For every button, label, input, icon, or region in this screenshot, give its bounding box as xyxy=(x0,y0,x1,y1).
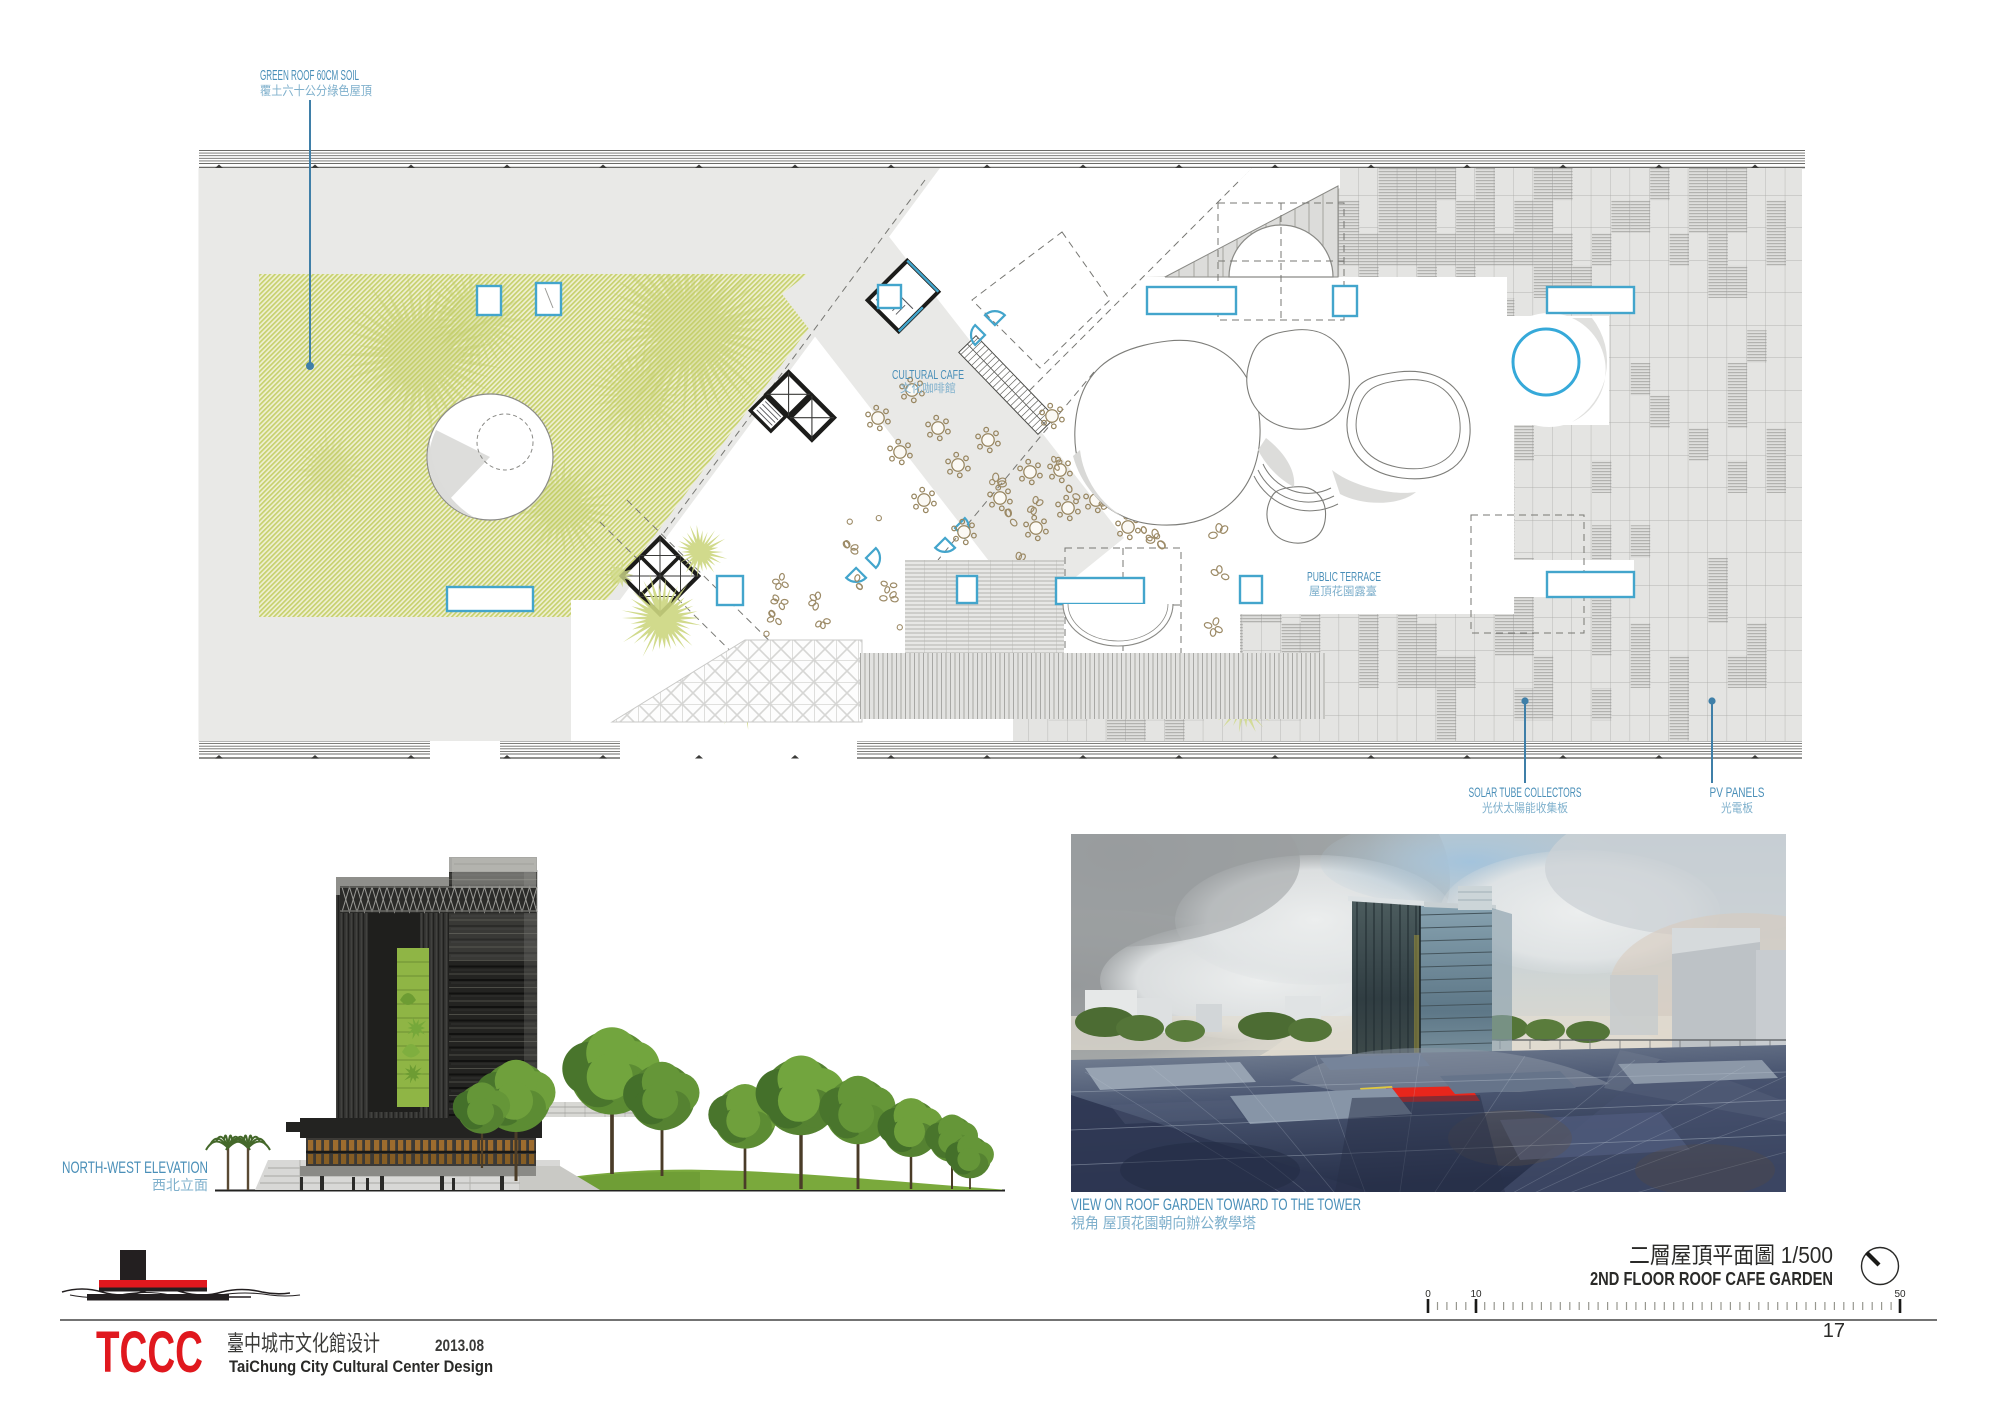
svg-text:二層屋頂平面圖 1/500: 二層屋頂平面圖 1/500 xyxy=(1629,1242,1833,1268)
svg-text:臺中城市文化館设计: 臺中城市文化館设计 xyxy=(227,1331,380,1356)
svg-text:文化咖啡館: 文化咖啡館 xyxy=(900,381,956,395)
svg-text:2013.08: 2013.08 xyxy=(435,1337,484,1355)
svg-text:GREEN ROOF 60CM SOIL: GREEN ROOF 60CM SOIL xyxy=(260,68,359,84)
svg-text:17: 17 xyxy=(1823,1320,1845,1342)
svg-text:NORTH-WEST ELEVATION: NORTH-WEST ELEVATION xyxy=(62,1158,208,1177)
svg-text:光電板: 光電板 xyxy=(1721,801,1753,815)
svg-text:CULTURAL CAFE: CULTURAL CAFE xyxy=(892,368,964,382)
svg-text:視角 屋頂花園朝向辦公教學塔: 視角 屋頂花園朝向辦公教學塔 xyxy=(1071,1214,1256,1232)
svg-text:SOLAR TUBE COLLECTORS: SOLAR TUBE COLLECTORS xyxy=(1469,784,1582,800)
svg-text:TCCC: TCCC xyxy=(96,1320,203,1385)
svg-text:PUBLIC TERRACE: PUBLIC TERRACE xyxy=(1307,570,1381,584)
svg-text:西北立面: 西北立面 xyxy=(152,1177,208,1193)
svg-text:覆土六十公分綠色屋頂: 覆土六十公分綠色屋頂 xyxy=(260,83,372,98)
svg-text:0: 0 xyxy=(1425,1289,1431,1300)
svg-text:VIEW ON ROOF GARDEN TOWARD TO: VIEW ON ROOF GARDEN TOWARD TO THE TOWER xyxy=(1071,1195,1361,1214)
svg-text:屋頂花園露臺: 屋頂花園露臺 xyxy=(1309,584,1377,598)
svg-text:10: 10 xyxy=(1470,1289,1482,1300)
svg-text:光伏太陽能收集板: 光伏太陽能收集板 xyxy=(1482,800,1568,815)
svg-text:TaiChung City Cultural Center: TaiChung City Cultural Center Design xyxy=(229,1357,493,1376)
svg-text:50: 50 xyxy=(1894,1289,1906,1300)
svg-text:PV PANELS: PV PANELS xyxy=(1710,784,1765,800)
svg-text:2ND FLOOR ROOF CAFE GARDEN: 2ND FLOOR ROOF CAFE GARDEN xyxy=(1590,1269,1833,1289)
